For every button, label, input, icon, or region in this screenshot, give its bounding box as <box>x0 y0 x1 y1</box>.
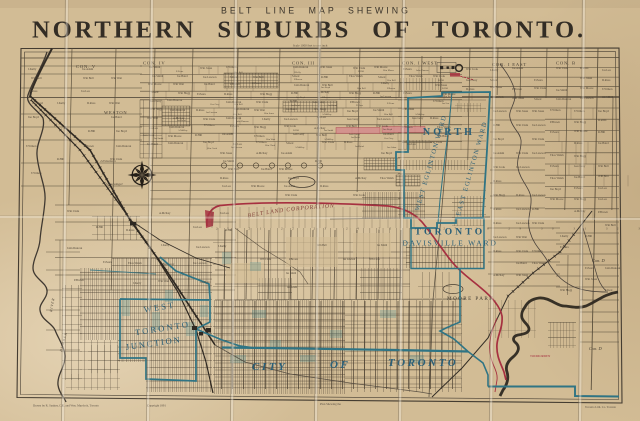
svg-text:John Duncan: John Duncan <box>416 69 429 72</box>
svg-text:Thos Walsh: Thos Walsh <box>532 261 546 265</box>
svg-text:R.Hill: R.Hill <box>358 70 364 73</box>
svg-text:Wm Clark: Wm Clark <box>532 137 545 141</box>
svg-text:Wm Clark: Wm Clark <box>430 140 443 144</box>
svg-text:Wm Clark: Wm Clark <box>556 66 569 70</box>
svg-text:D.Ross: D.Ross <box>598 118 607 122</box>
svg-text:D.Ross: D.Ross <box>493 179 502 183</box>
svg-text:Wm Jones: Wm Jones <box>200 66 213 70</box>
svg-text:Jos Lea: Jos Lea <box>222 184 231 188</box>
svg-text:Jas Baird: Jas Baird <box>598 141 609 145</box>
svg-text:Wm Bell: Wm Bell <box>357 87 366 90</box>
svg-text:Wm Hogg: Wm Hogg <box>574 154 587 158</box>
svg-text:TODMORDEN: TODMORDEN <box>530 354 551 358</box>
svg-text:R.Hill: R.Hill <box>321 75 328 79</box>
svg-text:A.McKay: A.McKay <box>295 146 305 149</box>
svg-text:Jas Smith: Jas Smith <box>152 74 164 78</box>
svg-text:T.Wilson: T.Wilson <box>602 87 613 91</box>
svg-text:Wm Jones: Wm Jones <box>516 273 529 277</box>
svg-text:John Duncan: John Duncan <box>293 65 309 69</box>
svg-text:P.Brown: P.Brown <box>598 210 608 214</box>
svg-text:Wm Clark: Wm Clark <box>67 209 80 213</box>
svg-text:D.Ross: D.Ross <box>320 184 329 188</box>
svg-text:Jas Smith: Jas Smith <box>286 272 297 275</box>
svg-text:J.Kelly: J.Kelly <box>28 67 37 71</box>
svg-text:Wm Clark: Wm Clark <box>516 151 529 155</box>
svg-text:Con. D: Con. D <box>589 346 603 351</box>
svg-text:Thos Walsh: Thos Walsh <box>380 176 394 180</box>
svg-text:Jos Lea: Jos Lea <box>220 211 229 215</box>
svg-text:Jos Lea: Jos Lea <box>442 102 450 105</box>
svg-text:Jas Baird: Jas Baird <box>111 115 122 119</box>
svg-text:D.Ross: D.Ross <box>516 193 525 197</box>
svg-text:J.Kelly: J.Kelly <box>218 244 227 248</box>
svg-text:Wm Watt: Wm Watt <box>173 82 184 86</box>
svg-text:A.McKay: A.McKay <box>355 176 367 180</box>
svg-text:T.Wilson: T.Wilson <box>31 171 42 175</box>
svg-text:Wm Moore: Wm Moore <box>550 197 564 201</box>
svg-text:Wm Clark: Wm Clark <box>516 249 529 253</box>
svg-text:Toronto Lith. Co. Toronto: Toronto Lith. Co. Toronto <box>585 405 617 409</box>
svg-text:Wm Jones: Wm Jones <box>220 151 233 155</box>
svg-text:D.Ross: D.Ross <box>344 140 353 144</box>
svg-text:R.Hill: R.Hill <box>290 99 297 103</box>
svg-text:Scale 1000 feet to one inch: Scale 1000 feet to one inch <box>293 44 328 48</box>
svg-text:Wm Cook: Wm Cook <box>466 67 479 71</box>
svg-text:P.Brown: P.Brown <box>512 87 522 91</box>
svg-text:D.Ross: D.Ross <box>220 176 229 180</box>
svg-text:Jas Baird: Jas Baird <box>438 134 449 138</box>
svg-text:R.Hill: R.Hill <box>442 87 448 90</box>
svg-text:Wm Bell: Wm Bell <box>83 76 94 80</box>
svg-text:A.McKay: A.McKay <box>256 151 268 155</box>
svg-text:Jno Boyd: Jno Boyd <box>296 96 306 99</box>
svg-text:Wm Watt: Wm Watt <box>516 235 527 239</box>
svg-text:Jas Baird: Jas Baird <box>328 104 338 107</box>
svg-text:Thos Walsh: Thos Walsh <box>128 261 142 265</box>
svg-text:Jas Lawson: Jas Lawson <box>203 75 217 79</box>
svg-text:E.Pears: E.Pears <box>550 164 560 168</box>
svg-text:Jas Smith: Jas Smith <box>154 137 164 140</box>
svg-text:Plan Shewing the: Plan Shewing the <box>320 402 342 406</box>
svg-text:Jas Lawson: Jas Lawson <box>493 109 507 113</box>
svg-text:Wm Hogg: Wm Hogg <box>560 288 573 292</box>
svg-text:John Duncan: John Duncan <box>170 108 186 112</box>
svg-text:Jas Baird: Jas Baird <box>355 145 365 148</box>
svg-text:P.Brown: P.Brown <box>84 144 94 148</box>
svg-text:Wm Bell: Wm Bell <box>228 167 239 171</box>
svg-text:A.McKay: A.McKay <box>178 129 188 132</box>
svg-text:Wm Jones: Wm Jones <box>532 109 545 113</box>
svg-text:A.McKay: A.McKay <box>159 211 171 215</box>
svg-text:Wm Moore: Wm Moore <box>279 167 293 171</box>
svg-text:Jas Lawson: Jas Lawson <box>493 235 507 239</box>
svg-text:Wm Moore: Wm Moore <box>168 134 182 138</box>
svg-text:Wm Watt: Wm Watt <box>266 138 275 141</box>
svg-text:S.Kerr: S.Kerr <box>286 141 294 145</box>
svg-text:R.Hill: R.Hill <box>88 129 95 133</box>
svg-text:D.Ross: D.Ross <box>87 101 96 105</box>
svg-text:Wm Jones: Wm Jones <box>585 277 598 281</box>
svg-text:Wm Hogg: Wm Hogg <box>254 125 267 129</box>
svg-text:Jas Adam: Jas Adam <box>281 151 293 155</box>
svg-text:D.Ross: D.Ross <box>466 87 475 91</box>
svg-text:P.Brown: P.Brown <box>387 87 396 90</box>
svg-text:R.Hill: R.Hill <box>438 79 444 82</box>
svg-text:Jas Lawson: Jas Lawson <box>284 117 298 121</box>
svg-text:Wm Moore: Wm Moore <box>251 184 265 188</box>
svg-text:Jas Lawson: Jas Lawson <box>516 165 530 169</box>
svg-text:Wm Clark: Wm Clark <box>260 258 272 261</box>
svg-text:P.Brown: P.Brown <box>322 96 331 99</box>
svg-text:NORTHERN SUBURBS OF TORONTO: NORTHERN SUBURBS OF TORONTO. <box>32 17 586 44</box>
svg-text:Geo Grey: Geo Grey <box>412 116 424 120</box>
svg-text:Jas Baird: Jas Baird <box>383 132 394 136</box>
svg-text:Jno Boyd: Jno Boyd <box>28 115 40 119</box>
svg-text:A.McKay: A.McKay <box>493 273 505 277</box>
svg-text:Thos Walsh: Thos Walsh <box>437 125 451 129</box>
svg-text:Jas Baird: Jas Baird <box>177 74 188 78</box>
svg-text:Wm Bell: Wm Bell <box>598 174 609 178</box>
svg-text:Wm Moore: Wm Moore <box>580 86 594 90</box>
svg-text:Thos Walsh: Thos Walsh <box>349 74 363 78</box>
svg-text:CITY: CITY <box>252 361 287 373</box>
svg-text:T.Wilson: T.Wilson <box>26 144 37 148</box>
svg-text:Jas Adam: Jas Adam <box>387 146 396 149</box>
svg-text:Jas Adam: Jas Adam <box>512 66 524 70</box>
svg-text:Wm Clark: Wm Clark <box>265 144 276 147</box>
svg-text:Jas Lawson: Jas Lawson <box>193 261 207 265</box>
svg-text:P.Brown: P.Brown <box>294 78 303 81</box>
svg-text:D.Ross: D.Ross <box>224 92 233 96</box>
svg-text:Jas Lawson: Jas Lawson <box>516 207 530 211</box>
svg-text:T.Wilson: T.Wilson <box>550 108 561 112</box>
svg-text:Geo Grey: Geo Grey <box>210 103 220 106</box>
svg-text:D.Ross: D.Ross <box>126 228 135 232</box>
svg-text:John Duncan: John Duncan <box>294 83 310 87</box>
svg-text:Jas Smith: Jas Smith <box>377 244 388 247</box>
svg-text:John Duncan: John Duncan <box>168 141 184 145</box>
svg-text:Jno Boyd: Jno Boyd <box>203 140 215 144</box>
svg-text:Wm Clark: Wm Clark <box>256 100 269 104</box>
svg-text:J.E.Grainger: J.E.Grainger <box>105 182 124 186</box>
svg-text:R.Hill: R.Hill <box>57 157 64 161</box>
svg-text:J.Kelly: J.Kelly <box>133 281 142 285</box>
svg-text:Jas Lawson: Jas Lawson <box>343 258 356 261</box>
svg-text:CON. I WEST: CON. I WEST <box>402 61 438 66</box>
svg-text:Jos Lea: Jos Lea <box>193 225 202 229</box>
svg-text:John Duncan: John Duncan <box>67 246 83 250</box>
svg-text:Wm Cook: Wm Cook <box>433 74 446 78</box>
svg-text:Jas Adam: Jas Adam <box>284 184 296 188</box>
svg-text:J.Kelly: J.Kelly <box>161 243 170 247</box>
svg-text:Jas Smith: Jas Smith <box>373 108 385 112</box>
svg-text:Jos Lea: Jos Lea <box>598 186 607 190</box>
svg-text:Jas Smith: Jas Smith <box>602 95 614 99</box>
svg-text:E.Pears: E.Pears <box>252 81 262 85</box>
svg-text:Wm Cook: Wm Cook <box>369 258 380 261</box>
svg-text:Jas Adam: Jas Adam <box>222 132 234 136</box>
svg-text:Jas Lawson: Jas Lawson <box>380 95 392 98</box>
svg-text:Wm Cook: Wm Cook <box>353 193 366 197</box>
svg-text:S.Kerr: S.Kerr <box>151 90 159 94</box>
svg-text:Wm Jones: Wm Jones <box>512 96 525 100</box>
svg-text:T.Wilson: T.Wilson <box>532 249 543 253</box>
svg-text:Jno Boyd: Jno Boyd <box>116 129 128 133</box>
svg-text:Jno Boyd: Jno Boyd <box>32 101 44 105</box>
svg-text:Wm Jones: Wm Jones <box>320 65 333 69</box>
svg-text:J.Kelly: J.Kelly <box>381 81 390 85</box>
svg-text:Wm Jones: Wm Jones <box>264 112 274 115</box>
svg-text:R.Hill: R.Hill <box>225 228 232 232</box>
svg-text:Jas Baird: Jas Baird <box>286 107 297 111</box>
svg-text:Jos Lea: Jos Lea <box>407 142 416 146</box>
svg-text:Jos Lea: Jos Lea <box>602 68 611 72</box>
svg-text:Jas Lawson: Jas Lawson <box>532 193 546 197</box>
svg-text:E.Pears: E.Pears <box>403 67 413 71</box>
svg-text:Thos Walsh: Thos Walsh <box>550 176 564 180</box>
svg-text:Jas Baird: Jas Baird <box>204 82 215 86</box>
svg-text:John Duncan: John Duncan <box>236 120 249 123</box>
svg-text:Wm Moore: Wm Moore <box>383 69 394 72</box>
svg-text:Jno Boyd: Jno Boyd <box>598 109 610 113</box>
svg-text:Wm Bell: Wm Bell <box>31 76 42 80</box>
svg-text:E.Pears: E.Pears <box>176 70 183 73</box>
svg-text:Wm Clark: Wm Clark <box>322 140 335 144</box>
svg-text:Wm Bell: Wm Bell <box>605 223 616 227</box>
svg-text:Wm Cook: Wm Cook <box>207 147 218 150</box>
svg-text:P.Brown: P.Brown <box>74 278 84 282</box>
svg-text:Geo Grey: Geo Grey <box>293 132 305 136</box>
svg-text:Jas Lawson: Jas Lawson <box>377 117 391 121</box>
svg-text:Wm Clark: Wm Clark <box>532 221 545 225</box>
svg-text:S.Kerr: S.Kerr <box>605 288 613 292</box>
svg-text:R.Hill: R.Hill <box>585 234 592 238</box>
svg-text:R.Hill: R.Hill <box>96 225 103 229</box>
svg-text:P.Brown: P.Brown <box>550 120 560 124</box>
svg-text:Jas Baird: Jas Baird <box>516 261 527 265</box>
svg-text:J.Kelly: J.Kelly <box>560 234 569 238</box>
svg-text:Copyright 1891: Copyright 1891 <box>147 404 166 408</box>
svg-text:Geo Grey: Geo Grey <box>163 262 175 266</box>
svg-text:Wm Bell: Wm Bell <box>598 164 609 168</box>
svg-text:Wm Clark: Wm Clark <box>534 86 547 90</box>
svg-text:TORONTO: TORONTO <box>415 228 486 238</box>
svg-text:Wm Bell: Wm Bell <box>346 124 357 128</box>
svg-text:John Duncan: John Duncan <box>556 97 572 101</box>
svg-text:Jno Boyd: Jno Boyd <box>383 128 393 131</box>
svg-text:E.Pears: E.Pears <box>585 266 595 270</box>
svg-text:Wm Bell: Wm Bell <box>443 95 452 98</box>
svg-text:Wm Watt: Wm Watt <box>111 76 122 80</box>
svg-text:John Duncan: John Duncan <box>605 266 621 270</box>
svg-text:Wm Clark: Wm Clark <box>285 193 298 197</box>
svg-text:S.Kerr: S.Kerr <box>534 97 542 101</box>
svg-text:OF: OF <box>330 359 350 371</box>
svg-text:Thos Walsh: Thos Walsh <box>409 74 423 78</box>
svg-text:John Duncan: John Duncan <box>116 144 132 148</box>
svg-text:R.Hill: R.Hill <box>291 91 298 95</box>
svg-text:Jas Baird: Jas Baird <box>200 280 211 284</box>
svg-text:CON. B: CON. B <box>556 61 576 66</box>
svg-text:Wm Watt: Wm Watt <box>109 101 120 105</box>
svg-text:Wm Jones: Wm Jones <box>516 109 529 113</box>
svg-text:Jas Lawson: Jas Lawson <box>206 111 218 114</box>
svg-text:Con. D: Con. D <box>592 258 606 263</box>
svg-text:Jas Baird: Jas Baird <box>261 167 272 171</box>
svg-text:Jas Baird: Jas Baird <box>351 136 361 139</box>
svg-text:Wm Jones: Wm Jones <box>490 85 503 89</box>
svg-text:Wm Hogg: Wm Hogg <box>349 91 362 95</box>
svg-text:E.Pears: E.Pears <box>197 92 207 96</box>
svg-text:Jno Boyd: Jno Boyd <box>321 86 331 89</box>
svg-text:Jas Lawson: Jas Lawson <box>532 123 546 127</box>
svg-text:Wm Clark: Wm Clark <box>203 117 216 121</box>
svg-text:E.Pears: E.Pears <box>550 130 560 134</box>
svg-text:Jno Boyd: Jno Boyd <box>550 187 562 191</box>
svg-text:Thos Walsh: Thos Walsh <box>550 153 564 157</box>
svg-text:Wm Bell: Wm Bell <box>253 75 264 79</box>
svg-text:Geo Grey: Geo Grey <box>466 78 478 82</box>
svg-text:Jas Adam: Jas Adam <box>82 67 94 71</box>
svg-text:DAVISVILLE WARD: DAVISVILLE WARD <box>402 239 497 248</box>
svg-text:MOORE PARK: MOORE PARK <box>447 296 494 302</box>
svg-text:T.Wilson: T.Wilson <box>254 134 265 138</box>
svg-text:E.Pears: E.Pears <box>560 245 570 249</box>
svg-text:Wm Bell: Wm Bell <box>384 113 393 116</box>
svg-text:Jas Lawson: Jas Lawson <box>532 151 546 155</box>
svg-text:E.Pears: E.Pears <box>387 102 394 105</box>
svg-text:Jas Lawson: Jas Lawson <box>516 221 530 225</box>
svg-text:Wm Bell: Wm Bell <box>316 133 327 137</box>
svg-text:D.Ross: D.Ross <box>602 78 611 82</box>
svg-text:Wm Watt: Wm Watt <box>158 279 169 283</box>
svg-text:Wm Hogg: Wm Hogg <box>260 92 273 96</box>
svg-text:Jas Baird: Jas Baird <box>177 119 187 122</box>
svg-text:Wm Clark: Wm Clark <box>516 123 529 127</box>
svg-text:Jas Adam: Jas Adam <box>287 286 297 289</box>
svg-text:R.Hill: R.Hill <box>195 133 202 137</box>
svg-text:P.Brown: P.Brown <box>289 258 299 261</box>
svg-text:Jno Boyd: Jno Boyd <box>493 137 505 141</box>
svg-text:Jas Smith: Jas Smith <box>556 88 568 92</box>
svg-text:Jno Boyd: Jno Boyd <box>347 109 359 113</box>
svg-text:Jas Lawson: Jas Lawson <box>196 245 210 249</box>
svg-text:Wm Cook: Wm Cook <box>284 124 297 128</box>
svg-text:Wm Moore: Wm Moore <box>148 82 162 86</box>
svg-text:R.Hill: R.Hill <box>532 207 539 211</box>
svg-text:Geo Grey: Geo Grey <box>384 137 394 140</box>
svg-text:Jas Smith: Jas Smith <box>324 129 334 132</box>
svg-text:J.P.Jackson: J.P.Jackson <box>100 159 116 163</box>
svg-text:D.Ross: D.Ross <box>29 89 38 93</box>
svg-text:Jno Boyd: Jno Boyd <box>381 151 393 155</box>
svg-text:E.Pears: E.Pears <box>534 78 544 82</box>
svg-text:D.Ross: D.Ross <box>196 108 205 112</box>
svg-text:Jos Lea: Jos Lea <box>81 89 90 93</box>
svg-text:John Duncan: John Duncan <box>167 98 183 102</box>
svg-text:Geo Grey: Geo Grey <box>347 117 359 121</box>
svg-text:BELT LINE MAP SHEWING: BELT LINE MAP SHEWING <box>221 6 411 16</box>
svg-text:Jos Lea: Jos Lea <box>598 197 607 201</box>
svg-text:R.Hill: R.Hill <box>598 130 605 134</box>
svg-text:Wm Hogg: Wm Hogg <box>178 91 191 95</box>
svg-text:E.Pears: E.Pears <box>103 260 113 264</box>
svg-text:J.Kelly: J.Kelly <box>262 117 271 121</box>
svg-text:D.Ross: D.Ross <box>430 116 439 120</box>
svg-text:S.Kerr: S.Kerr <box>378 75 386 79</box>
svg-text:D.Ross: D.Ross <box>356 104 363 107</box>
svg-text:Jno Boyd: Jno Boyd <box>288 176 300 180</box>
svg-text:T.Wilson: T.Wilson <box>204 123 215 127</box>
